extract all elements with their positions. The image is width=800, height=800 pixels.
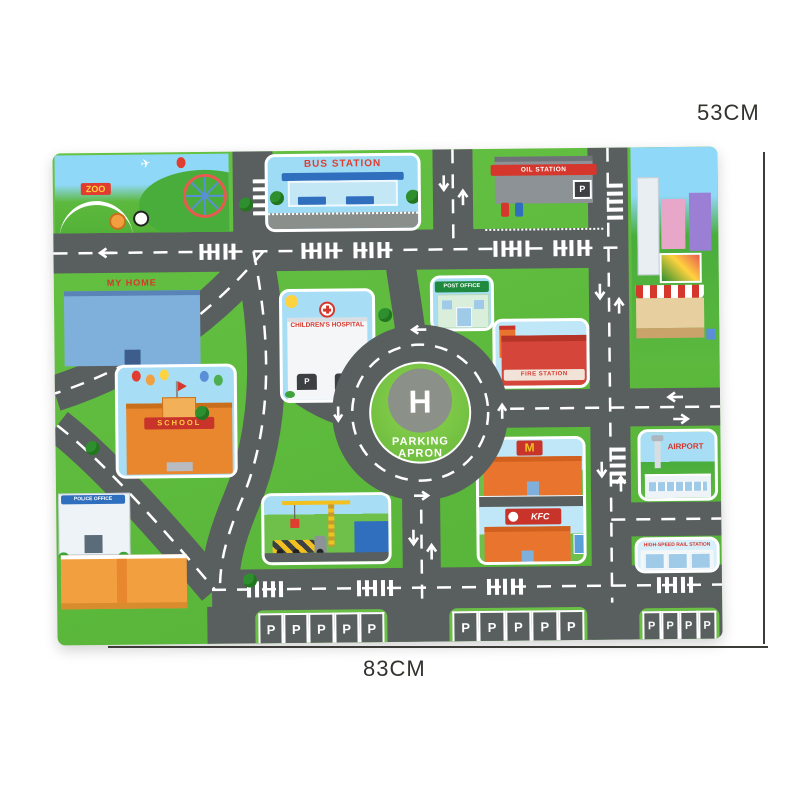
fire-station: FIRE STATION <box>492 318 590 389</box>
parking-stall: P <box>258 613 284 643</box>
fuel-pump <box>501 203 509 217</box>
height-dimension-line <box>763 152 765 644</box>
garage-p-sign: P <box>335 373 355 389</box>
helipad-pad <box>388 368 453 433</box>
billboard <box>660 253 702 283</box>
parking-stall: P <box>334 612 360 642</box>
restaurants: M KFC <box>475 436 586 565</box>
ferris-wheel-icon <box>183 174 227 218</box>
sun-icon <box>285 295 298 308</box>
my-home-sign: MY HOME <box>58 277 206 289</box>
parking-stall: P <box>679 611 698 639</box>
childrens-hospital: CHILDREN'S HOSPITAL P P <box>279 288 376 403</box>
bush <box>285 391 295 398</box>
parking-stall: P <box>283 613 309 643</box>
kfc-sign: KFC <box>505 508 561 525</box>
awning-shop <box>636 285 705 342</box>
terminal-building <box>645 474 711 499</box>
parking-stall: P <box>309 613 335 643</box>
mcdonalds-arches-icon: M <box>516 440 542 455</box>
bench <box>346 196 374 204</box>
balloon-icon <box>176 157 185 168</box>
parking-stall: P <box>479 611 506 641</box>
tree <box>270 191 284 205</box>
parking-stall: P <box>452 611 479 641</box>
width-dimension-line <box>108 646 768 648</box>
parking-lot: P P P P <box>639 608 719 640</box>
school-pediment <box>162 397 196 419</box>
crosswalks <box>199 175 694 646</box>
post-office: POST OFFICE <box>430 275 495 332</box>
parking-stall: P <box>558 610 585 640</box>
hospital-sign: CHILDREN'S HOSPITAL <box>282 321 372 329</box>
school-steps <box>167 462 193 471</box>
red-cross-icon <box>319 302 335 318</box>
hospital-windows <box>292 333 362 366</box>
balloon-icon <box>146 374 155 385</box>
site-road <box>265 552 389 562</box>
phone-booth-icon <box>573 534 585 554</box>
parking-stall: P <box>359 612 385 642</box>
bush <box>361 390 371 397</box>
apartment-building <box>61 550 192 611</box>
helipad-letter: H <box>408 384 431 420</box>
parking-lot: P P P P P <box>255 609 387 643</box>
airport: AIRPORT <box>637 429 718 502</box>
bus-station-sign: BUS STATION <box>268 158 418 171</box>
home-building <box>64 290 201 366</box>
station-doors <box>513 179 557 196</box>
my-home: MY HOME <box>58 276 207 370</box>
width-dimension-label: 83CM <box>363 656 426 682</box>
oil-station-sign: OIL STATION <box>491 164 597 176</box>
helipad-label-1: PARKING <box>392 435 449 448</box>
garage-p-sign: P <box>297 374 317 390</box>
helipad-label-2: APRON <box>398 447 443 459</box>
parking-stall: P <box>698 611 717 639</box>
fire-station-sign: FIRE STATION <box>504 369 585 381</box>
lion-icon <box>109 213 126 230</box>
bin <box>706 329 715 340</box>
panda-icon <box>133 210 149 226</box>
kfc: KFC <box>479 506 584 565</box>
parking-sign: P <box>573 180 592 199</box>
zoo-sign: ZOO <box>81 183 111 195</box>
city-shops <box>630 147 719 370</box>
shop-building-pink <box>661 199 686 249</box>
apartment-base <box>61 602 187 609</box>
school: SCHOOL <box>115 364 238 479</box>
apartment-walls <box>61 554 188 609</box>
tree <box>406 190 420 204</box>
kfc-building <box>484 526 570 565</box>
zoo-area: ✈ ZOO <box>54 154 229 234</box>
rail-hall <box>641 550 714 571</box>
parking-stall: P <box>661 611 680 639</box>
airport-sign: AIRPORT <box>658 442 712 452</box>
plane-icon: ✈ <box>139 156 152 172</box>
parking-stall: P <box>531 610 558 640</box>
tree <box>243 573 257 587</box>
parking-lot: P P P P P <box>449 607 587 641</box>
tree <box>239 197 253 211</box>
tree <box>195 406 209 420</box>
platform <box>268 212 418 230</box>
colonel-icon <box>508 512 518 522</box>
rail-station: HIGH-SPEED RAIL STATION <box>634 537 719 574</box>
tree <box>85 441 99 455</box>
fuel-pump <box>515 203 523 217</box>
tree <box>378 308 392 322</box>
police-office-sign: POLICE OFFICE <box>61 495 125 505</box>
parking-stall: P <box>505 611 532 641</box>
product-photo: ✈ ZOO BUS STATION <box>0 0 800 800</box>
balloon-icon <box>160 369 169 380</box>
shop-building-purple <box>689 193 712 251</box>
balloon-icon <box>132 371 141 382</box>
mcdonalds: M <box>478 439 583 496</box>
balloon-icon <box>200 371 209 382</box>
bench <box>298 197 326 205</box>
play-mat: ✈ ZOO BUS STATION <box>52 147 722 646</box>
control-tower-icon <box>654 440 660 468</box>
oil-station: OIL STATION P <box>484 152 603 231</box>
post-office-building <box>437 294 489 329</box>
parking-stall: P <box>642 611 661 639</box>
bus-station: BUS STATION <box>264 153 421 233</box>
construction-site <box>261 492 392 565</box>
balloon-icon <box>214 375 223 386</box>
rail-station-sign: HIGH-SPEED RAIL STATION <box>638 542 717 549</box>
post-office-sign: POST OFFICE <box>435 281 489 293</box>
height-dimension-label: 53CM <box>697 100 760 126</box>
shop-tower <box>637 177 660 275</box>
mcdonalds-building <box>484 456 582 498</box>
construction-building <box>354 521 388 553</box>
